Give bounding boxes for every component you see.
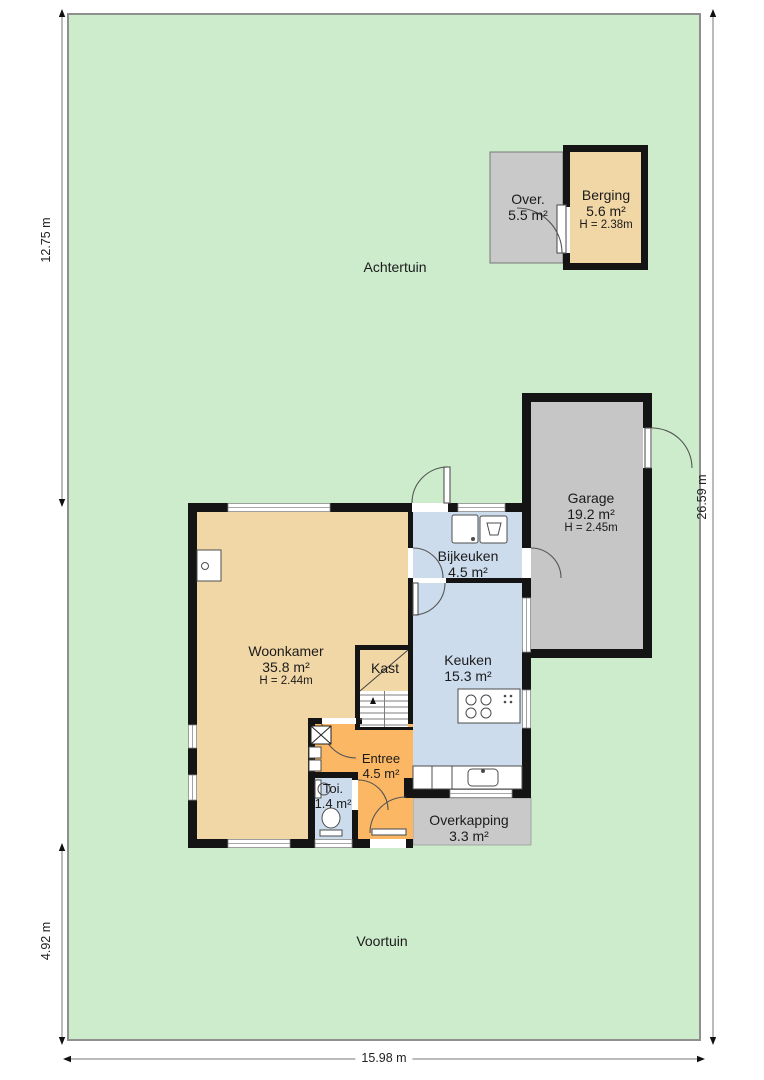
floorplan-drawing [0, 0, 764, 1080]
window-left-2 [189, 775, 197, 800]
window-bottom-toilet [315, 840, 352, 848]
window-keuken-right-2 [523, 690, 531, 728]
room-label-woonkamer: Woonkamer 35.8 m² H = 2.44m [248, 643, 323, 689]
counter-sink-keuken [413, 766, 522, 789]
room-label-keuken: Keuken 15.3 m² [444, 652, 491, 684]
washer-bijkeuken [452, 515, 478, 543]
window-keuken-right-1 [523, 598, 531, 652]
room-label-entree: Entree 4.5 m² [362, 751, 400, 781]
room-label-garage: Garage 19.2 m² H = 2.45m [564, 490, 617, 536]
room-label-toilet: Toi. 1.4 m² [315, 781, 352, 811]
dimension-label-left-upper: 12.75 m [39, 217, 54, 262]
fireplace-box-woonkamer [197, 550, 221, 581]
room-label-bijkeuken: Bijkeuken 4.5 m² [438, 548, 499, 580]
laundry-tub-bijkeuken [480, 516, 507, 543]
window-woonkamer-top [228, 504, 330, 512]
window-bijkeuken-top [458, 504, 505, 512]
garden-back-label: Achtertuin [363, 259, 426, 275]
dimension-label-left-lower: 4.92 m [39, 922, 54, 960]
dimension-label-bottom: 15.98 m [355, 1051, 412, 1066]
shaft-box [311, 726, 331, 744]
stove-keuken [458, 689, 520, 723]
toilet-bowl [320, 808, 342, 836]
room-label-overkapping-klein: Over. 5.5 m² [508, 191, 548, 223]
dimension-label-right: 26.59 m [695, 474, 710, 519]
floorplan-canvas: Achtertuin Voortuin Woonkamer 35.8 m² H … [0, 0, 764, 1080]
window-keuken-bottom [450, 790, 512, 798]
room-label-berging: Berging 5.6 m² H = 2.38m [579, 187, 632, 233]
window-bottom-woonkamer [228, 840, 290, 848]
garden-front-label: Voortuin [356, 933, 407, 949]
room-label-kast: Kast [371, 660, 399, 676]
window-left-1 [189, 725, 197, 748]
room-label-overkapping: Overkapping 3.3 m² [429, 812, 508, 844]
room-keuken [413, 583, 522, 789]
